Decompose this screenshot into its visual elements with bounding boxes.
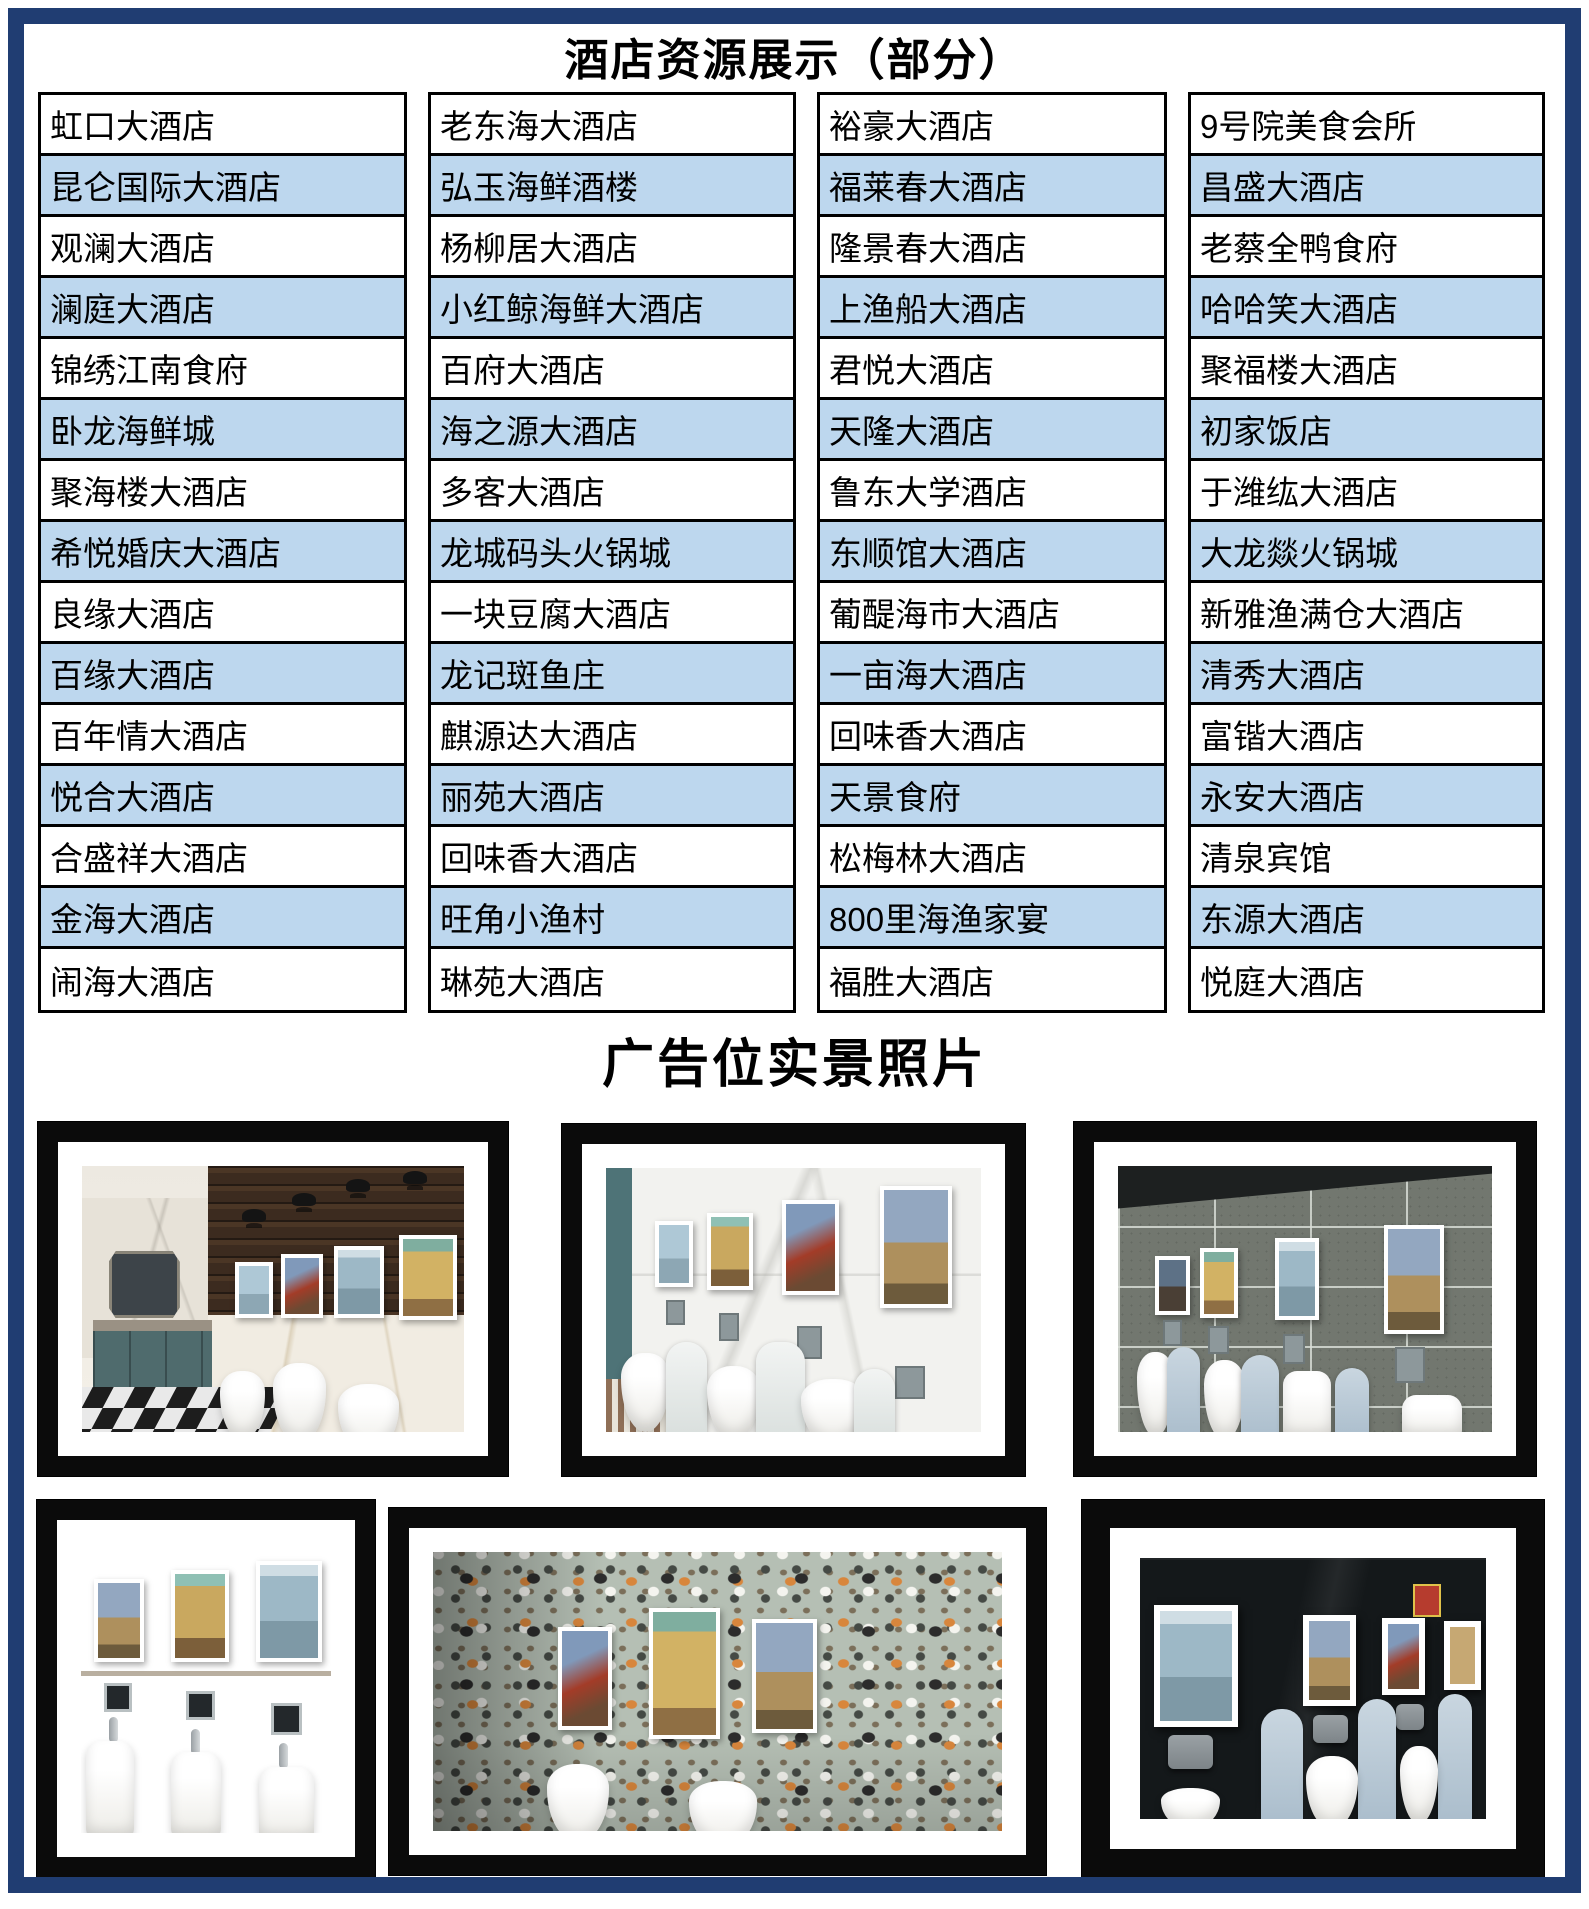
hotel-name-cell: 新雅渔满仓大酒店 (1191, 583, 1542, 644)
hotel-name-cell: 隆景春大酒店 (820, 217, 1164, 278)
flush-sensor (104, 1683, 133, 1712)
warning-sign (1413, 1584, 1441, 1617)
flush-sensor (186, 1691, 215, 1720)
art-poster (235, 1262, 274, 1318)
cathedral-art-icon (756, 1623, 813, 1729)
photo-mat (1110, 1528, 1516, 1849)
art-poster (1154, 1605, 1239, 1727)
art-poster (1303, 1615, 1357, 1705)
urinal (707, 1366, 760, 1432)
urinal (1400, 1746, 1438, 1819)
page-title: 酒店资源展示（部分） (24, 24, 1565, 92)
photo-mat (582, 1144, 1005, 1456)
urinal-divider (1335, 1368, 1369, 1432)
hotel-name-cell: 良缘大酒店 (41, 583, 404, 644)
bathroom-photo-6 (1082, 1500, 1544, 1877)
photos-section-title: 广告位实景照片 (24, 1023, 1565, 1103)
urinal (273, 1363, 326, 1432)
hotel-column-2: 老东海大酒店弘玉海鲜酒楼杨柳居大酒店小红鲸海鲜大酒店百府大酒店海之源大酒店多客大… (428, 92, 796, 1013)
hotel-table: 虹口大酒店昆仑国际大酒店观澜大酒店澜庭大酒店锦绣江南食府卧龙海鲜城聚海楼大酒店希… (38, 92, 1545, 1013)
art-poster (171, 1570, 229, 1662)
flush-sensor (666, 1300, 685, 1325)
flush-pipe (191, 1729, 200, 1755)
hotel-name-cell: 富锴大酒店 (1191, 705, 1542, 766)
art-poster (649, 1608, 720, 1739)
sconce-lamp-icon (292, 1193, 316, 1206)
hotel-name-cell: 琳苑大酒店 (431, 949, 793, 1010)
sconce-lamp-icon (403, 1171, 427, 1184)
photo-scene-6 (1140, 1558, 1486, 1819)
art-poster (1382, 1618, 1425, 1695)
hotel-name-cell: 海之源大酒店 (431, 400, 793, 461)
painting-art-icon (1450, 1627, 1474, 1684)
photo-scene-4 (81, 1544, 331, 1833)
flush-sensor (1283, 1334, 1306, 1365)
hotel-name-cell: 小红鲸海鲜大酒店 (431, 278, 793, 339)
hotel-name-cell: 悦庭大酒店 (1191, 949, 1542, 1010)
ship-art-icon (239, 1266, 270, 1314)
hotel-name-cell: 龙记斑鱼庄 (431, 644, 793, 705)
urinal (1402, 1395, 1462, 1432)
hotel-name-cell: 杨柳居大酒店 (431, 217, 793, 278)
urinal-divider (1438, 1694, 1473, 1819)
ship-art-icon (1279, 1242, 1315, 1316)
hotel-name-cell: 回味香大酒店 (820, 705, 1164, 766)
ceiling (1118, 1166, 1492, 1209)
photo-scene-3 (1118, 1166, 1492, 1432)
sunflower-art-icon (653, 1612, 716, 1735)
hotel-name-cell: 初家饭店 (1191, 400, 1542, 461)
hotel-name-cell: 观澜大酒店 (41, 217, 404, 278)
hotel-name-cell: 9号院美食会所 (1191, 95, 1542, 156)
art-poster (707, 1213, 753, 1290)
art-poster (281, 1254, 323, 1318)
hotel-name-cell: 于潍纮大酒店 (1191, 461, 1542, 522)
bathroom-photo-4 (37, 1500, 375, 1877)
hotel-name-cell: 松梅林大酒店 (820, 827, 1164, 888)
wall-ledge (81, 1671, 331, 1676)
art-poster (1444, 1621, 1480, 1690)
art-poster (1275, 1238, 1319, 1320)
urinal (86, 1741, 134, 1833)
vanity-cabinet (93, 1331, 211, 1392)
bathroom-photo-2 (562, 1124, 1025, 1476)
portrait-art-icon (1159, 1260, 1185, 1311)
hotel-name-cell: 昌盛大酒店 (1191, 156, 1542, 217)
photo-scene-5 (433, 1552, 1002, 1831)
art-poster (1155, 1256, 1189, 1315)
photo-mat (1094, 1142, 1516, 1456)
art-poster (782, 1200, 839, 1295)
hotel-name-cell: 东源大酒店 (1191, 888, 1542, 949)
urinal (259, 1767, 314, 1833)
hotel-name-cell: 澜庭大酒店 (41, 278, 404, 339)
photo-mat (58, 1142, 488, 1456)
napoleon-art-icon (285, 1258, 319, 1314)
urinal (1283, 1371, 1332, 1432)
sconce-lamp-icon (346, 1179, 370, 1192)
hotel-name-cell: 聚福楼大酒店 (1191, 339, 1542, 400)
flush-pipe (109, 1717, 118, 1743)
hotel-name-cell: 金海大酒店 (41, 888, 404, 949)
cathedral-art-icon (1388, 1229, 1440, 1330)
flyer-page: 酒店资源展示（部分） 虹口大酒店昆仑国际大酒店观澜大酒店澜庭大酒店锦绣江南食府卧… (8, 8, 1581, 1893)
hotel-name-cell: 龙城码头火锅城 (431, 522, 793, 583)
art-poster (752, 1619, 817, 1733)
hotel-name-cell: 天隆大酒店 (820, 400, 1164, 461)
hotel-name-cell: 百缘大酒店 (41, 644, 404, 705)
sunflower-art-icon (711, 1217, 749, 1286)
hotel-column-4: 9号院美食会所昌盛大酒店老蔡全鸭食府哈哈笑大酒店聚福楼大酒店初家饭店于潍纮大酒店… (1188, 92, 1545, 1013)
flush-pipe (279, 1743, 288, 1769)
hotel-name-cell: 800里海渔家宴 (820, 888, 1164, 949)
urinal-divider (1167, 1347, 1201, 1432)
urinal (547, 1764, 610, 1831)
photo-scene-2 (606, 1168, 981, 1432)
cathedral-art-icon (884, 1190, 948, 1304)
art-poster (256, 1561, 322, 1661)
napoleon-art-icon (562, 1631, 608, 1726)
hotel-name-cell: 悦合大酒店 (41, 766, 404, 827)
hotel-name-cell: 福莱春大酒店 (820, 156, 1164, 217)
flush-sensor (895, 1366, 925, 1399)
urinal (1306, 1756, 1358, 1819)
urinal-divider (1261, 1709, 1303, 1819)
napoleon-art-icon (786, 1204, 835, 1291)
hotel-name-cell: 旺角小渔村 (431, 888, 793, 949)
bathroom-photo-1 (38, 1122, 508, 1476)
hotel-name-cell: 麒源达大酒店 (431, 705, 793, 766)
flush-sensor (1163, 1320, 1182, 1345)
hotel-name-cell: 合盛祥大酒店 (41, 827, 404, 888)
hotel-name-cell: 天景食府 (820, 766, 1164, 827)
sconce-lamp-icon (242, 1209, 266, 1222)
hotel-name-cell: 弘玉海鲜酒楼 (431, 156, 793, 217)
art-poster (880, 1186, 952, 1308)
sunflower-art-icon (1204, 1252, 1234, 1313)
hotel-name-cell: 虹口大酒店 (41, 95, 404, 156)
sunflower-art-icon (403, 1239, 453, 1316)
hotel-name-cell: 一亩海大酒店 (820, 644, 1164, 705)
cathedral-art-icon (98, 1583, 141, 1658)
bathroom-photo-5 (389, 1508, 1046, 1875)
art-poster (558, 1627, 612, 1730)
art-poster (94, 1579, 145, 1662)
art-poster (1200, 1248, 1238, 1317)
hotel-name-cell: 福胜大酒店 (820, 949, 1164, 1010)
mirror (109, 1251, 180, 1318)
photo-mat (409, 1528, 1026, 1855)
hotel-name-cell: 希悦婚庆大酒店 (41, 522, 404, 583)
art-poster (655, 1221, 693, 1287)
flush-box (1168, 1735, 1213, 1769)
urinal-divider (1241, 1355, 1278, 1432)
hotel-name-cell: 东顺馆大酒店 (820, 522, 1164, 583)
hotel-name-cell: 百府大酒店 (431, 339, 793, 400)
art-poster (1384, 1225, 1444, 1334)
art-poster (399, 1235, 457, 1320)
ship-art-icon (1160, 1611, 1233, 1721)
hotel-name-cell: 聚海楼大酒店 (41, 461, 404, 522)
ship-art-icon (338, 1250, 380, 1314)
hotel-name-cell: 一块豆腐大酒店 (431, 583, 793, 644)
hotel-name-cell: 哈哈笑大酒店 (1191, 278, 1542, 339)
hotel-name-cell: 君悦大酒店 (820, 339, 1164, 400)
hotel-column-1: 虹口大酒店昆仑国际大酒店观澜大酒店澜庭大酒店锦绣江南食府卧龙海鲜城聚海楼大酒店希… (38, 92, 407, 1013)
hotel-name-cell: 大龙燚火锅城 (1191, 522, 1542, 583)
urinal (689, 1781, 757, 1831)
hotel-name-cell: 丽苑大酒店 (431, 766, 793, 827)
urinal (1204, 1360, 1245, 1432)
hotel-column-3: 裕豪大酒店福莱春大酒店隆景春大酒店上渔船大酒店君悦大酒店天隆大酒店鲁东大学酒店东… (817, 92, 1167, 1013)
hotel-name-cell: 葡醍海市大酒店 (820, 583, 1164, 644)
urinal (220, 1371, 266, 1432)
urinal-divider (854, 1369, 895, 1432)
vanity-counter (93, 1320, 211, 1331)
hotel-name-cell: 闹海大酒店 (41, 949, 404, 1010)
hotel-name-cell: 多客大酒店 (431, 461, 793, 522)
urinal-divider (666, 1342, 707, 1432)
hotel-name-cell: 永安大酒店 (1191, 766, 1542, 827)
hotel-name-cell: 裕豪大酒店 (820, 95, 1164, 156)
ship-art-icon (260, 1565, 318, 1657)
photo-scene-1 (82, 1166, 464, 1432)
hotel-name-cell: 老东海大酒店 (431, 95, 793, 156)
hotel-name-cell: 上渔船大酒店 (820, 278, 1164, 339)
cathedral-art-icon (1309, 1621, 1351, 1699)
teal-wall (606, 1168, 632, 1379)
hotel-name-cell: 回味香大酒店 (431, 827, 793, 888)
hotel-name-cell: 锦绣江南食府 (41, 339, 404, 400)
hotel-name-cell: 清秀大酒店 (1191, 644, 1542, 705)
urinal-divider (756, 1342, 805, 1432)
hotel-name-cell: 卧龙海鲜城 (41, 400, 404, 461)
art-poster (334, 1246, 384, 1318)
flush-sensor (1395, 1347, 1425, 1383)
flush-sensor (1208, 1326, 1229, 1354)
bathroom-photo-3 (1074, 1122, 1536, 1476)
ship-art-icon (659, 1225, 689, 1283)
flush-sensor (271, 1703, 302, 1735)
napoleon-art-icon (1388, 1624, 1419, 1689)
flush-box (1396, 1704, 1424, 1730)
hotel-name-cell: 百年情大酒店 (41, 705, 404, 766)
hotel-name-cell: 清泉宾馆 (1191, 827, 1542, 888)
flush-box (1313, 1715, 1348, 1744)
hotel-name-cell: 昆仑国际大酒店 (41, 156, 404, 217)
hotel-name-cell: 鲁东大学酒店 (820, 461, 1164, 522)
urinal (338, 1384, 399, 1432)
urinal-divider (1358, 1699, 1396, 1819)
hotel-name-cell: 老蔡全鸭食府 (1191, 217, 1542, 278)
flush-sensor (719, 1313, 740, 1341)
urinal (1161, 1788, 1220, 1819)
urinal (171, 1752, 221, 1833)
photo-mat (57, 1520, 355, 1857)
sunflower-art-icon (175, 1574, 225, 1658)
